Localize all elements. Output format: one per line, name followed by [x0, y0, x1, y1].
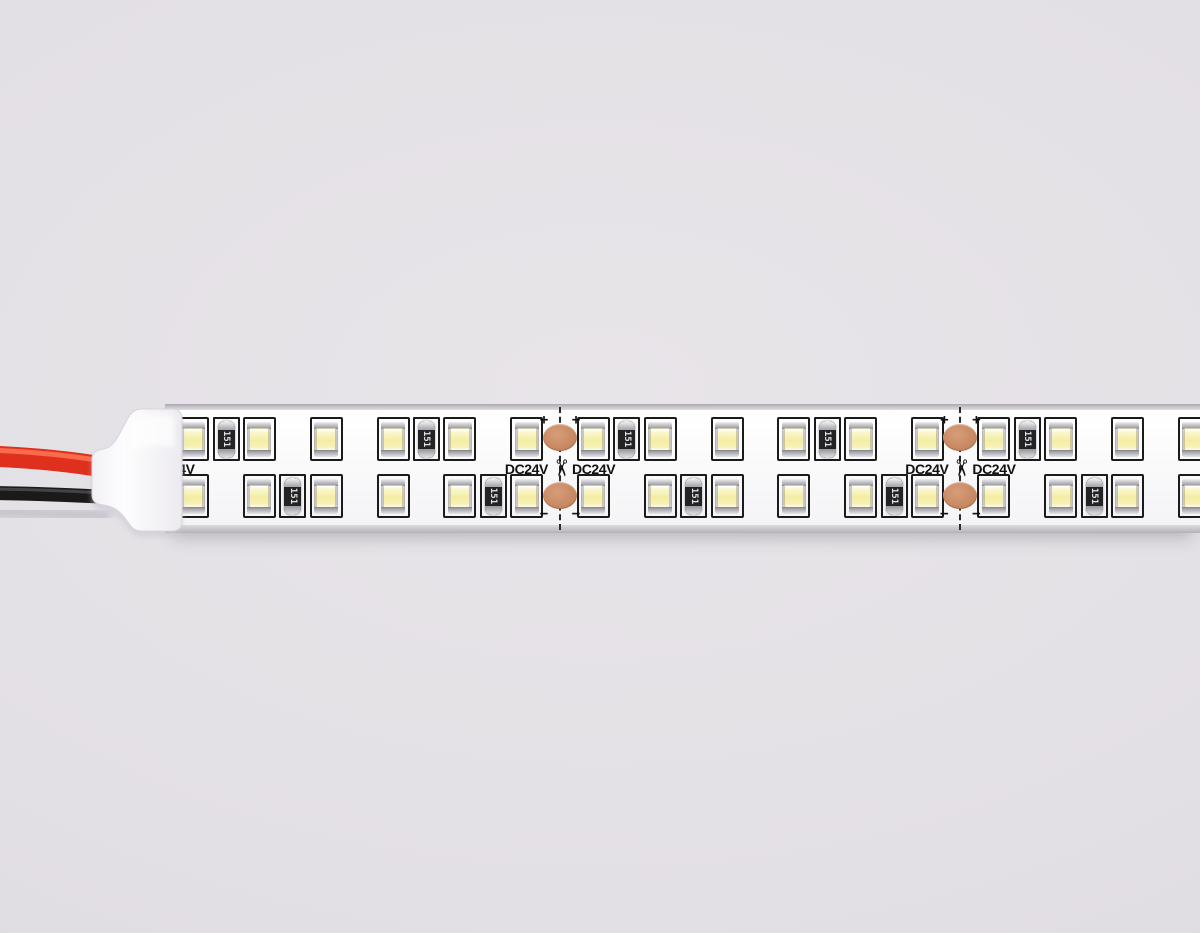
led-package — [1182, 479, 1200, 514]
led-emitting-window — [450, 485, 470, 508]
led-emitting-window — [717, 485, 737, 508]
voltage-label: DC24V — [505, 461, 548, 477]
led-emitting-window — [984, 428, 1004, 451]
led — [377, 474, 410, 518]
product-photo: 1511511511511511511511511511511514VDC24V… — [0, 0, 1200, 933]
led — [711, 417, 744, 461]
led-package — [782, 422, 806, 457]
led-package — [715, 422, 739, 457]
led-package — [1115, 422, 1139, 457]
resistor-body: 151 — [418, 421, 435, 458]
scissors-cut-icon: ✂ — [949, 458, 972, 477]
resistor: 151 — [1014, 417, 1041, 461]
led-package — [849, 479, 873, 514]
led-emitting-window — [851, 428, 871, 451]
led-package — [1115, 479, 1139, 514]
resistor-value-label: 151 — [1089, 488, 1099, 504]
led-strip: 1511511511511511511511511511511514VDC24V… — [165, 404, 1200, 533]
led-package — [782, 479, 806, 514]
resistor-body: 151 — [1086, 478, 1103, 515]
led-emitting-window — [784, 485, 804, 508]
led — [577, 474, 610, 518]
resistor-terminal — [485, 506, 502, 515]
led-package — [381, 422, 405, 457]
resistor-terminal — [1086, 478, 1103, 487]
led — [310, 474, 343, 518]
resistor-value-label: 151 — [622, 431, 632, 447]
led-package — [715, 479, 739, 514]
resistor-value-label: 151 — [889, 488, 899, 504]
led-emitting-window — [1117, 485, 1137, 508]
led-emitting-window — [917, 428, 937, 451]
led — [977, 417, 1010, 461]
led-emitting-window — [650, 428, 670, 451]
polarity-plus: + — [940, 412, 949, 429]
led — [777, 417, 810, 461]
resistor-body: 151 — [618, 421, 635, 458]
resistor: 151 — [613, 417, 640, 461]
led-emitting-window — [1184, 485, 1200, 508]
led-emitting-window — [450, 428, 470, 451]
resistor: 151 — [480, 474, 507, 518]
led-package — [1049, 422, 1073, 457]
voltage-label: DC24V — [905, 461, 948, 477]
resistor: 151 — [814, 417, 841, 461]
led — [1111, 417, 1144, 461]
led-package — [515, 479, 539, 514]
led-emitting-window — [1184, 428, 1200, 451]
resistor-terminal — [1086, 506, 1103, 515]
voltage-label: DC24V — [972, 461, 1015, 477]
resistor-terminal — [685, 506, 702, 515]
resistor-terminal — [685, 478, 702, 487]
led-emitting-window — [1051, 485, 1071, 508]
resistor-value-label: 151 — [288, 488, 298, 504]
polarity-plus: + — [572, 412, 581, 429]
resistor-terminal — [284, 478, 301, 487]
resistor-body: 151 — [1019, 421, 1036, 458]
resistor-value-label: 151 — [1022, 431, 1032, 447]
led — [644, 474, 677, 518]
led-emitting-window — [383, 428, 403, 451]
led-package — [314, 479, 338, 514]
led-package — [581, 479, 605, 514]
led-emitting-window — [583, 428, 603, 451]
resistor-terminal — [618, 449, 635, 458]
resistor: 151 — [881, 474, 908, 518]
polarity-plus: + — [972, 412, 981, 429]
led-package — [448, 422, 472, 457]
resistor-value-label: 151 — [689, 488, 699, 504]
resistor-terminal — [1019, 449, 1036, 458]
resistor-body: 151 — [485, 478, 502, 515]
led — [1111, 474, 1144, 518]
led — [1178, 417, 1200, 461]
led-emitting-window — [717, 428, 737, 451]
led-emitting-window — [1051, 428, 1071, 451]
voltage-label: DC24V — [572, 461, 615, 477]
led-package — [581, 422, 605, 457]
led — [844, 417, 877, 461]
led-emitting-window — [517, 428, 537, 451]
led — [443, 417, 476, 461]
resistor-terminal — [886, 478, 903, 487]
resistor-terminal — [1019, 421, 1036, 430]
led-package — [381, 479, 405, 514]
led-emitting-window — [316, 485, 336, 508]
pcb-bottom-edge — [165, 525, 1200, 533]
polarity-plus: + — [540, 412, 549, 429]
led-package — [915, 422, 939, 457]
led — [644, 417, 677, 461]
led-emitting-window — [517, 485, 537, 508]
led-package — [448, 479, 472, 514]
led-package — [982, 422, 1006, 457]
led-emitting-window — [984, 485, 1004, 508]
led — [243, 474, 276, 518]
resistor-terminal — [886, 506, 903, 515]
led — [1044, 474, 1077, 518]
resistor-body: 151 — [819, 421, 836, 458]
led-package — [1182, 422, 1200, 457]
led-emitting-window — [1117, 428, 1137, 451]
resistor: 151 — [680, 474, 707, 518]
led-package — [982, 479, 1006, 514]
led-emitting-window — [249, 485, 269, 508]
led — [443, 474, 476, 518]
resistor-terminal — [418, 449, 435, 458]
led — [1044, 417, 1077, 461]
led-emitting-window — [249, 428, 269, 451]
scissors-cut-icon: ✂ — [549, 458, 572, 477]
led — [711, 474, 744, 518]
led-emitting-window — [784, 428, 804, 451]
resistor-body: 151 — [685, 478, 702, 515]
led — [510, 417, 543, 461]
led-emitting-window — [316, 428, 336, 451]
led-package — [915, 479, 939, 514]
led — [577, 417, 610, 461]
led — [911, 417, 944, 461]
led — [844, 474, 877, 518]
resistor: 151 — [413, 417, 440, 461]
led — [777, 474, 810, 518]
polarity-minus: − — [940, 506, 949, 523]
led-emitting-window — [650, 485, 670, 508]
led — [1178, 474, 1200, 518]
resistor: 151 — [279, 474, 306, 518]
led-package — [648, 422, 672, 457]
led-emitting-window — [383, 485, 403, 508]
resistor-terminal — [418, 421, 435, 430]
polarity-minus: − — [972, 506, 981, 523]
led — [977, 474, 1010, 518]
resistor-value-label: 151 — [421, 431, 431, 447]
led-package — [247, 479, 271, 514]
resistor-terminal — [618, 421, 635, 430]
led — [310, 417, 343, 461]
led — [510, 474, 543, 518]
led-package — [247, 422, 271, 457]
resistor-terminal — [819, 449, 836, 458]
polarity-minus: − — [572, 506, 581, 523]
led — [377, 417, 410, 461]
led-package — [648, 479, 672, 514]
end-cap — [70, 395, 200, 545]
led-package — [849, 422, 873, 457]
resistor-body: 151 — [284, 478, 301, 515]
led — [243, 417, 276, 461]
resistor-value-label: 151 — [488, 488, 498, 504]
resistor: 151 — [1081, 474, 1108, 518]
led-package — [1049, 479, 1073, 514]
led-emitting-window — [917, 485, 937, 508]
resistor-value-label: 151 — [822, 431, 832, 447]
resistor-body: 151 — [886, 478, 903, 515]
led-package — [314, 422, 338, 457]
led-emitting-window — [583, 485, 603, 508]
led — [911, 474, 944, 518]
resistor-terminal — [485, 478, 502, 487]
led-package — [515, 422, 539, 457]
polarity-minus: − — [540, 506, 549, 523]
resistor-terminal — [819, 421, 836, 430]
end-cap-highlight — [129, 415, 174, 451]
resistor-terminal — [284, 506, 301, 515]
led-emitting-window — [851, 485, 871, 508]
